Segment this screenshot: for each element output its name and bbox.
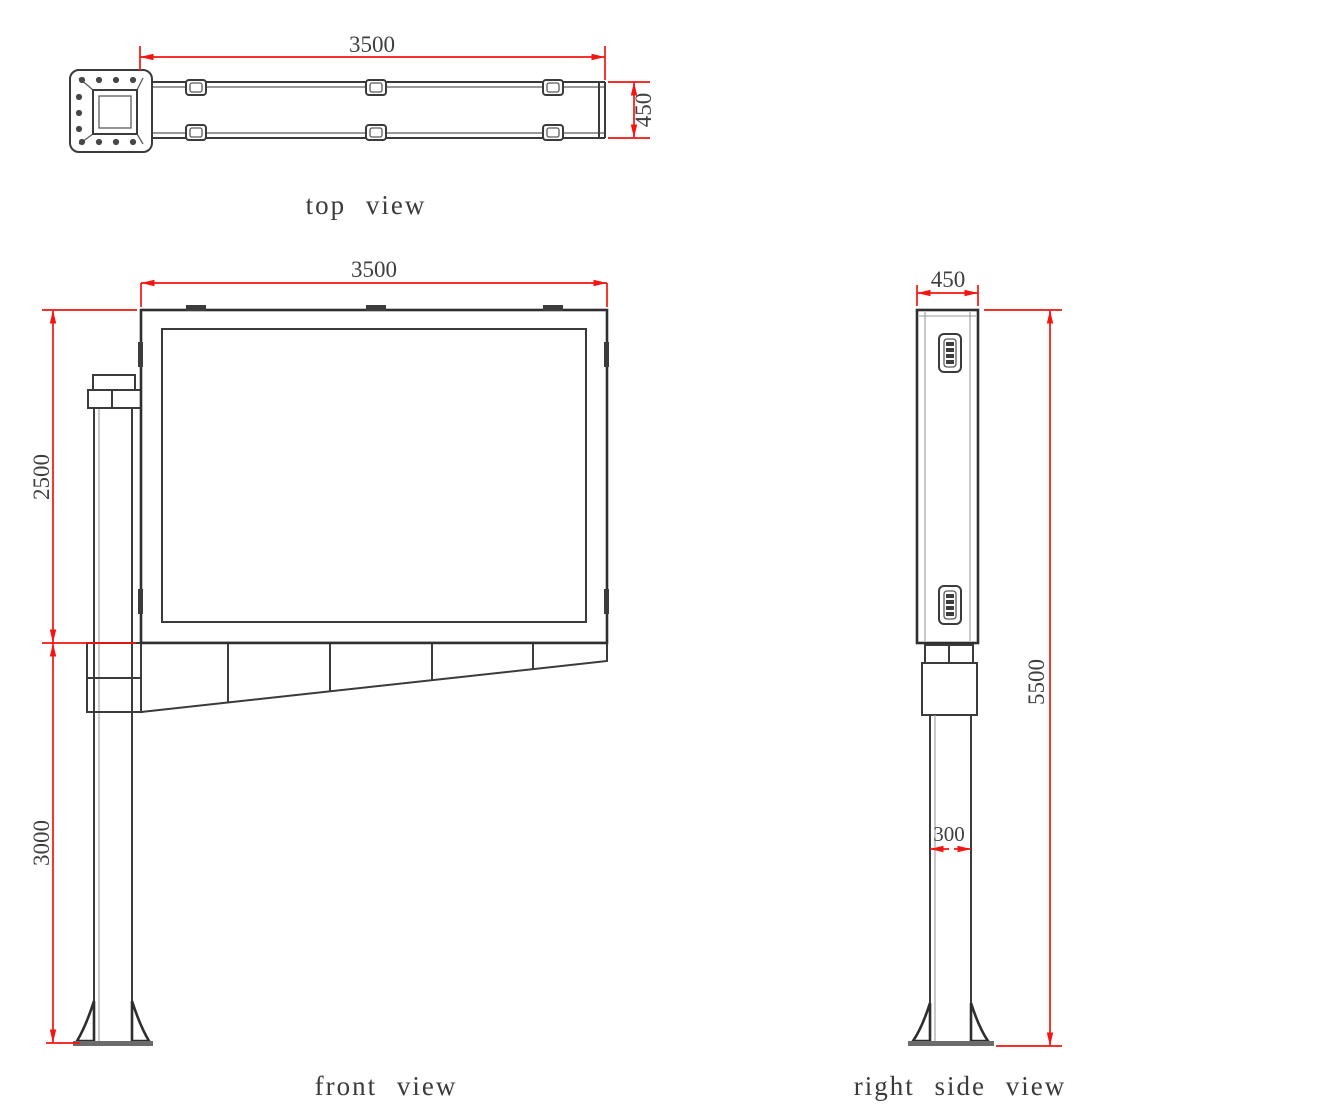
base-gusset — [971, 1003, 988, 1041]
drawing-canvas: 3500 450 top view — [0, 0, 1340, 1113]
billboard-technical-drawing: 3500 450 top view — [0, 0, 1340, 1113]
top-tab — [366, 305, 386, 311]
dimension-value: 3000 — [29, 820, 54, 866]
top-tab — [186, 305, 206, 311]
dimension-value: 5500 — [1024, 659, 1049, 705]
beam-clip — [543, 80, 563, 95]
frame-hinge — [604, 342, 609, 367]
side-board — [917, 310, 978, 643]
dimension-top-width: 3500 — [140, 32, 605, 80]
side-base — [908, 1003, 994, 1046]
dimension-front-width: 3500 — [141, 257, 607, 307]
dimension-top-depth: 450 — [608, 82, 656, 138]
frame-hinge — [138, 342, 143, 367]
top-tab — [543, 305, 563, 311]
front-view-label: front view — [315, 1071, 458, 1101]
dimension-value: 450 — [931, 267, 966, 292]
base-gusset — [77, 1001, 94, 1041]
dimension-side-pole-width: 300 — [930, 822, 971, 849]
under-frame-truss — [141, 643, 607, 712]
dimension-value: 450 — [631, 93, 656, 128]
dimension-side-depth: 450 — [917, 267, 978, 306]
top-view-label: top view — [306, 190, 427, 220]
beam-clip — [186, 125, 206, 140]
beam-clips — [186, 80, 563, 140]
support-pole — [94, 408, 132, 1041]
dimension-side-total-height: 5500 — [984, 310, 1062, 1046]
beam-clip — [186, 80, 206, 95]
dimension-front-pole-height: 3000 — [29, 643, 80, 1043]
front-view: 3500 2500 3000 front view — [29, 257, 609, 1101]
right-side-view-label: right side view — [854, 1071, 1066, 1101]
beam-clip — [543, 125, 563, 140]
beam-clip — [366, 80, 386, 95]
pole-lower-bracket — [87, 643, 142, 712]
base-plate — [908, 1041, 994, 1046]
pole-top-bracket — [88, 375, 142, 408]
dimension-value: 3500 — [351, 257, 397, 282]
dimension-front-board-height: 2500 — [29, 310, 137, 643]
side-bracket — [922, 645, 977, 715]
right-side-view: 450 5500 300 right side view — [854, 267, 1066, 1101]
base-gusset — [913, 1003, 930, 1041]
front-base — [73, 1001, 153, 1046]
top-view: 3500 450 top view — [70, 32, 656, 220]
billboard-frame — [138, 305, 609, 643]
dimension-value: 300 — [933, 822, 965, 846]
beam-clip — [366, 125, 386, 140]
side-pole — [930, 715, 971, 1041]
service-step — [939, 334, 961, 372]
base-plate — [73, 1041, 153, 1046]
flange-plate — [70, 70, 152, 152]
frame-hinge — [604, 589, 609, 614]
dimension-value: 2500 — [29, 454, 54, 500]
dimension-value: 3500 — [349, 32, 395, 57]
service-step — [939, 586, 961, 624]
frame-hinge — [138, 589, 143, 614]
base-gusset — [132, 1001, 149, 1041]
